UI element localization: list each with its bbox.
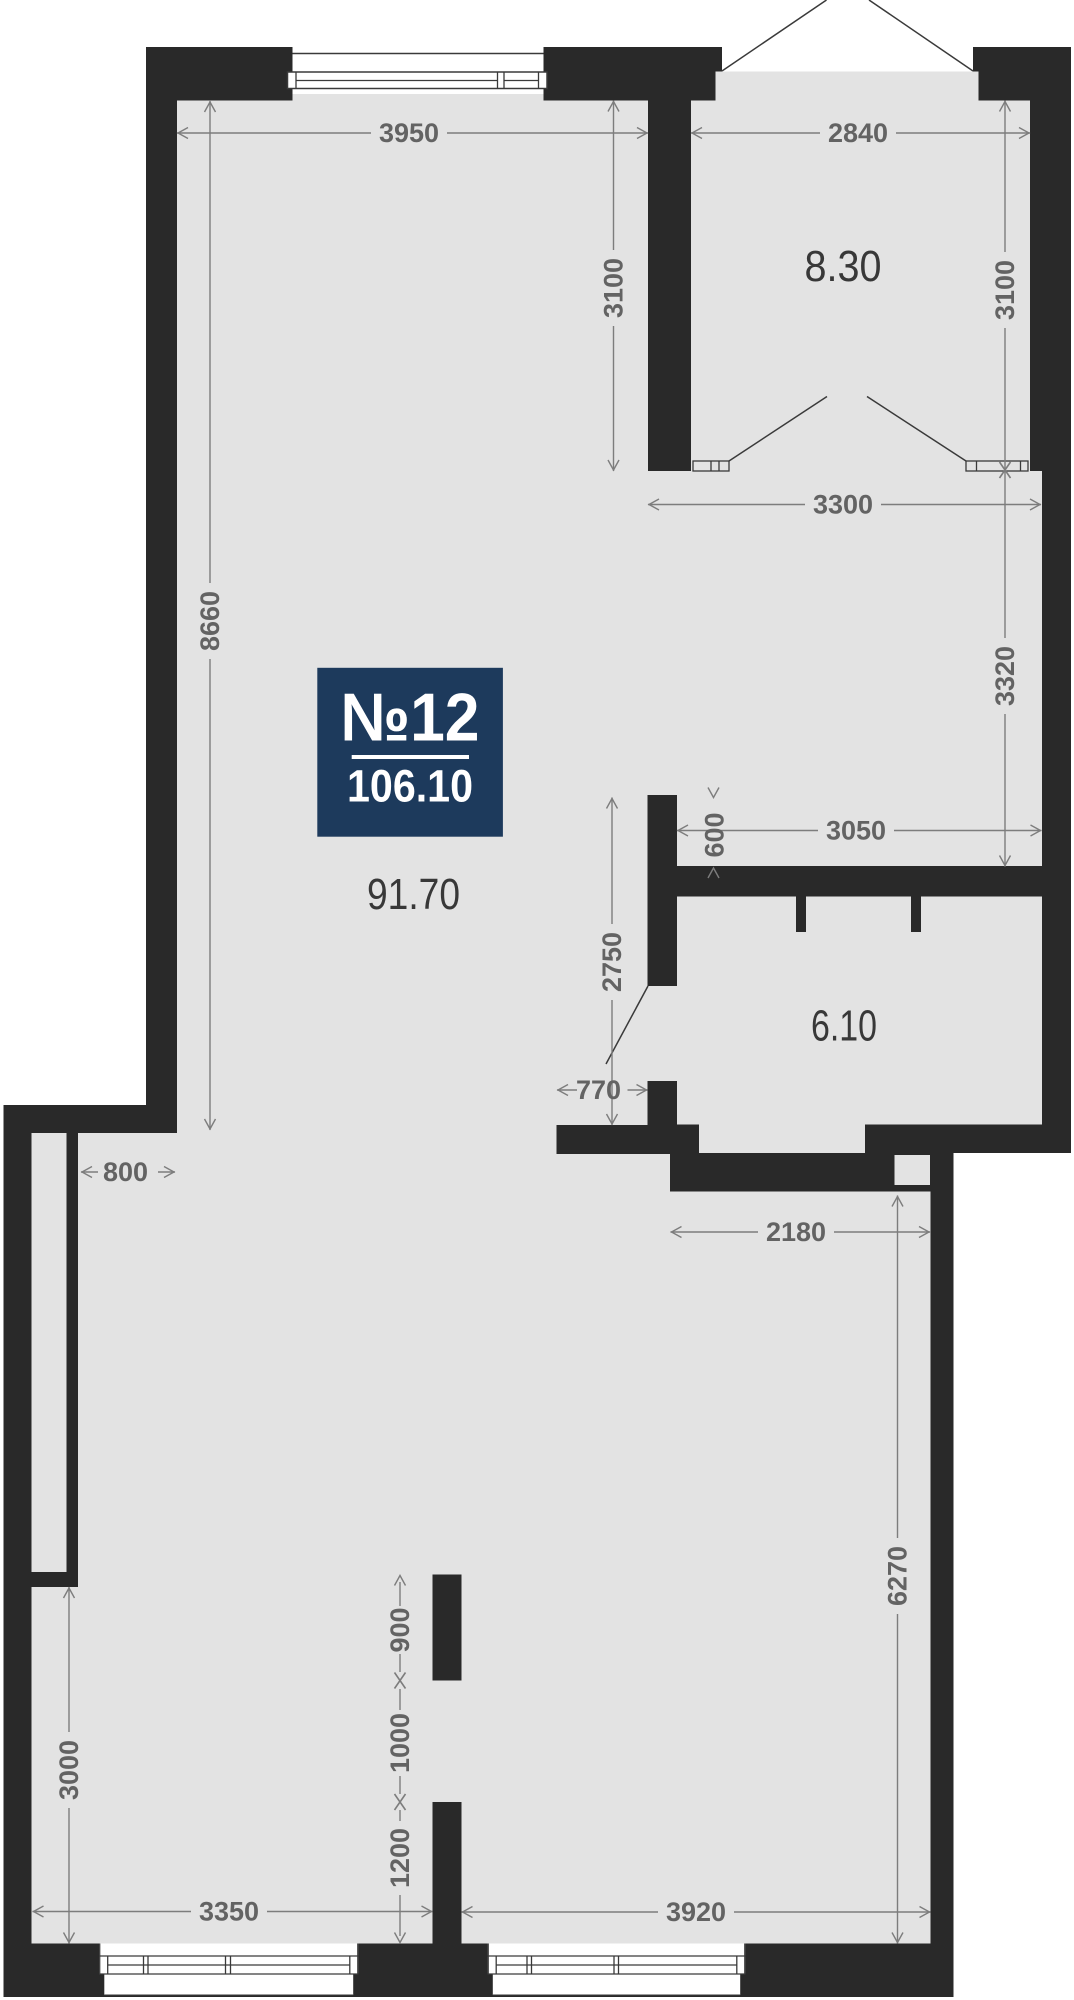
svg-text:1000: 1000	[385, 1713, 415, 1773]
svg-text:600: 600	[700, 812, 730, 857]
svg-text:8.30: 8.30	[805, 242, 882, 291]
svg-text:1200: 1200	[385, 1828, 415, 1888]
svg-text:2840: 2840	[828, 118, 888, 148]
svg-text:№12: №12	[341, 680, 480, 756]
svg-text:3300: 3300	[813, 490, 873, 520]
svg-text:2180: 2180	[766, 1217, 826, 1247]
svg-text:2750: 2750	[597, 932, 627, 992]
svg-text:6270: 6270	[883, 1546, 913, 1606]
svg-text:3050: 3050	[826, 816, 886, 846]
svg-text:3350: 3350	[199, 1897, 259, 1927]
svg-text:900: 900	[385, 1607, 415, 1652]
svg-text:3100: 3100	[990, 260, 1020, 320]
svg-text:91.70: 91.70	[367, 870, 460, 919]
svg-text:3920: 3920	[666, 1897, 726, 1927]
svg-text:3100: 3100	[599, 258, 629, 318]
svg-text:3320: 3320	[990, 646, 1020, 706]
svg-text:6.10: 6.10	[811, 1002, 877, 1051]
svg-text:106.10: 106.10	[347, 761, 473, 812]
svg-text:770: 770	[576, 1075, 621, 1105]
svg-text:3000: 3000	[54, 1740, 84, 1800]
svg-text:8660: 8660	[195, 591, 225, 651]
svg-text:800: 800	[103, 1157, 148, 1187]
svg-text:3950: 3950	[379, 118, 439, 148]
